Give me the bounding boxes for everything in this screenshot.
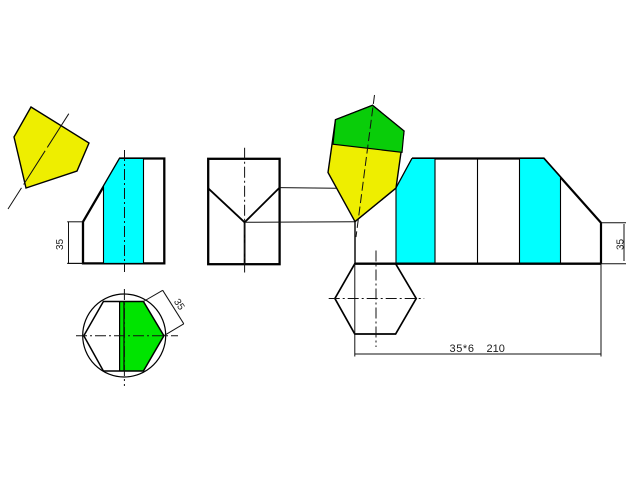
svg-text:35: 35 (55, 238, 66, 250)
svg-text:210: 210 (487, 343, 505, 355)
svg-text:35*6: 35*6 (450, 343, 475, 355)
svg-text:35: 35 (616, 238, 627, 250)
